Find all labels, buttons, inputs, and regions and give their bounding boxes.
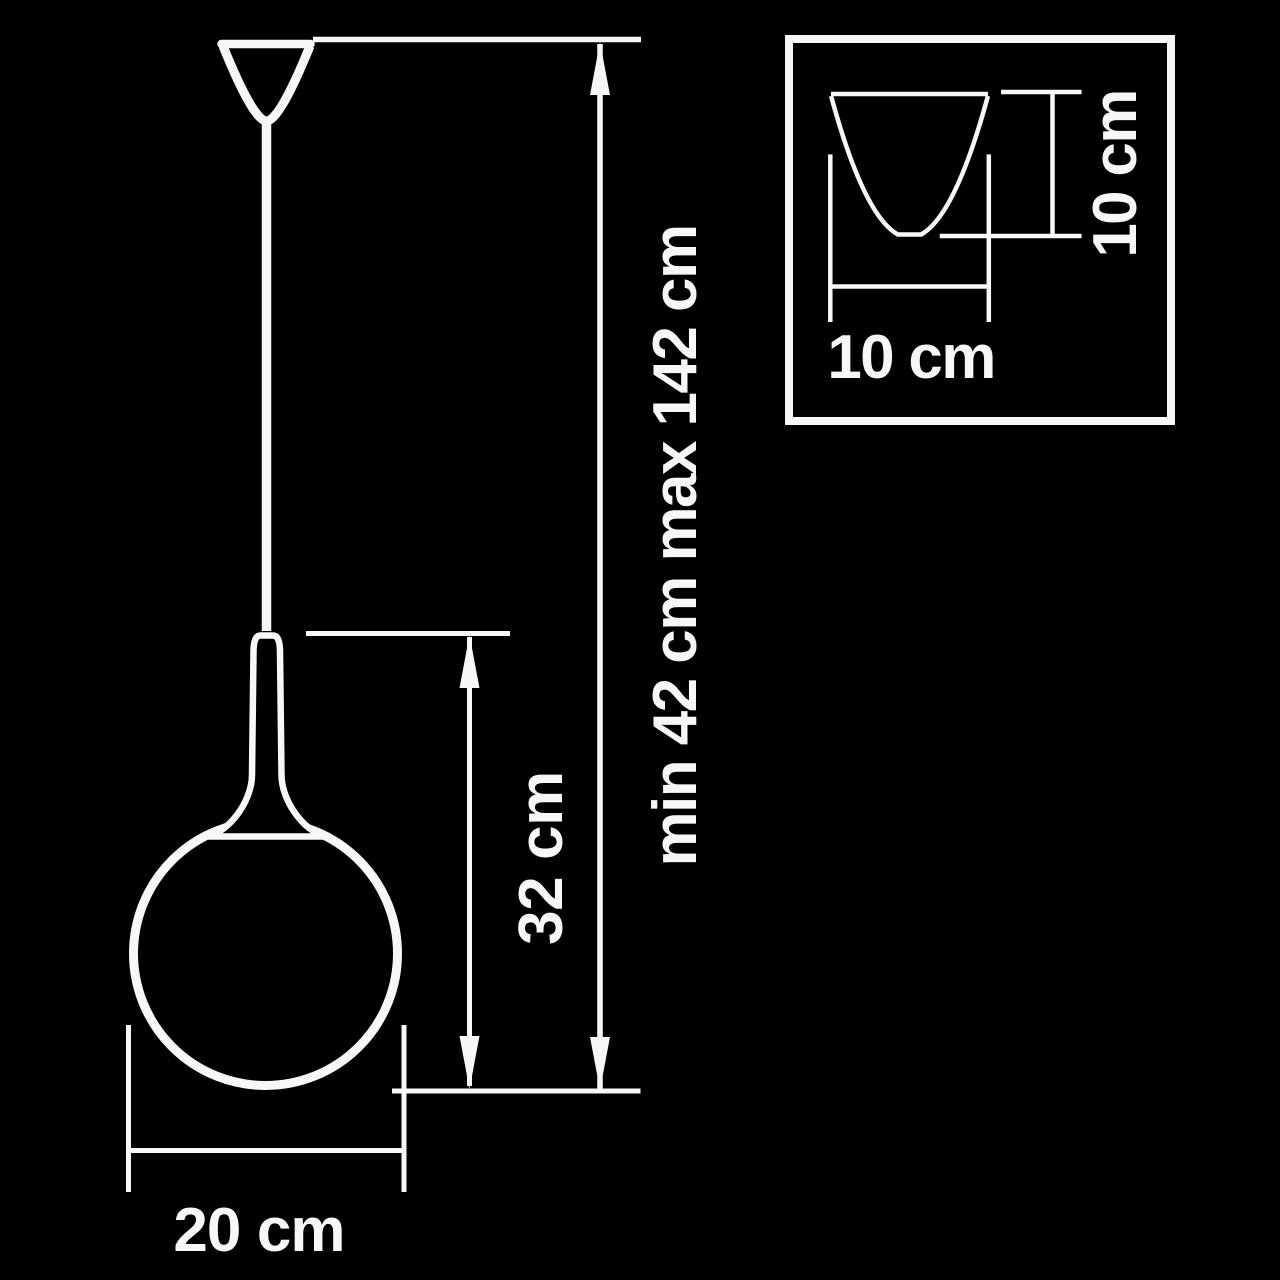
svg-text:10 cm: 10 cm	[1081, 90, 1150, 257]
svg-text:32 cm: 32 cm	[507, 771, 576, 945]
svg-text:min 42 cm max 142 cm: min 42 cm max 142 cm	[641, 225, 710, 866]
svg-text:20 cm: 20 cm	[173, 1196, 344, 1265]
svg-text:10 cm: 10 cm	[827, 323, 994, 392]
